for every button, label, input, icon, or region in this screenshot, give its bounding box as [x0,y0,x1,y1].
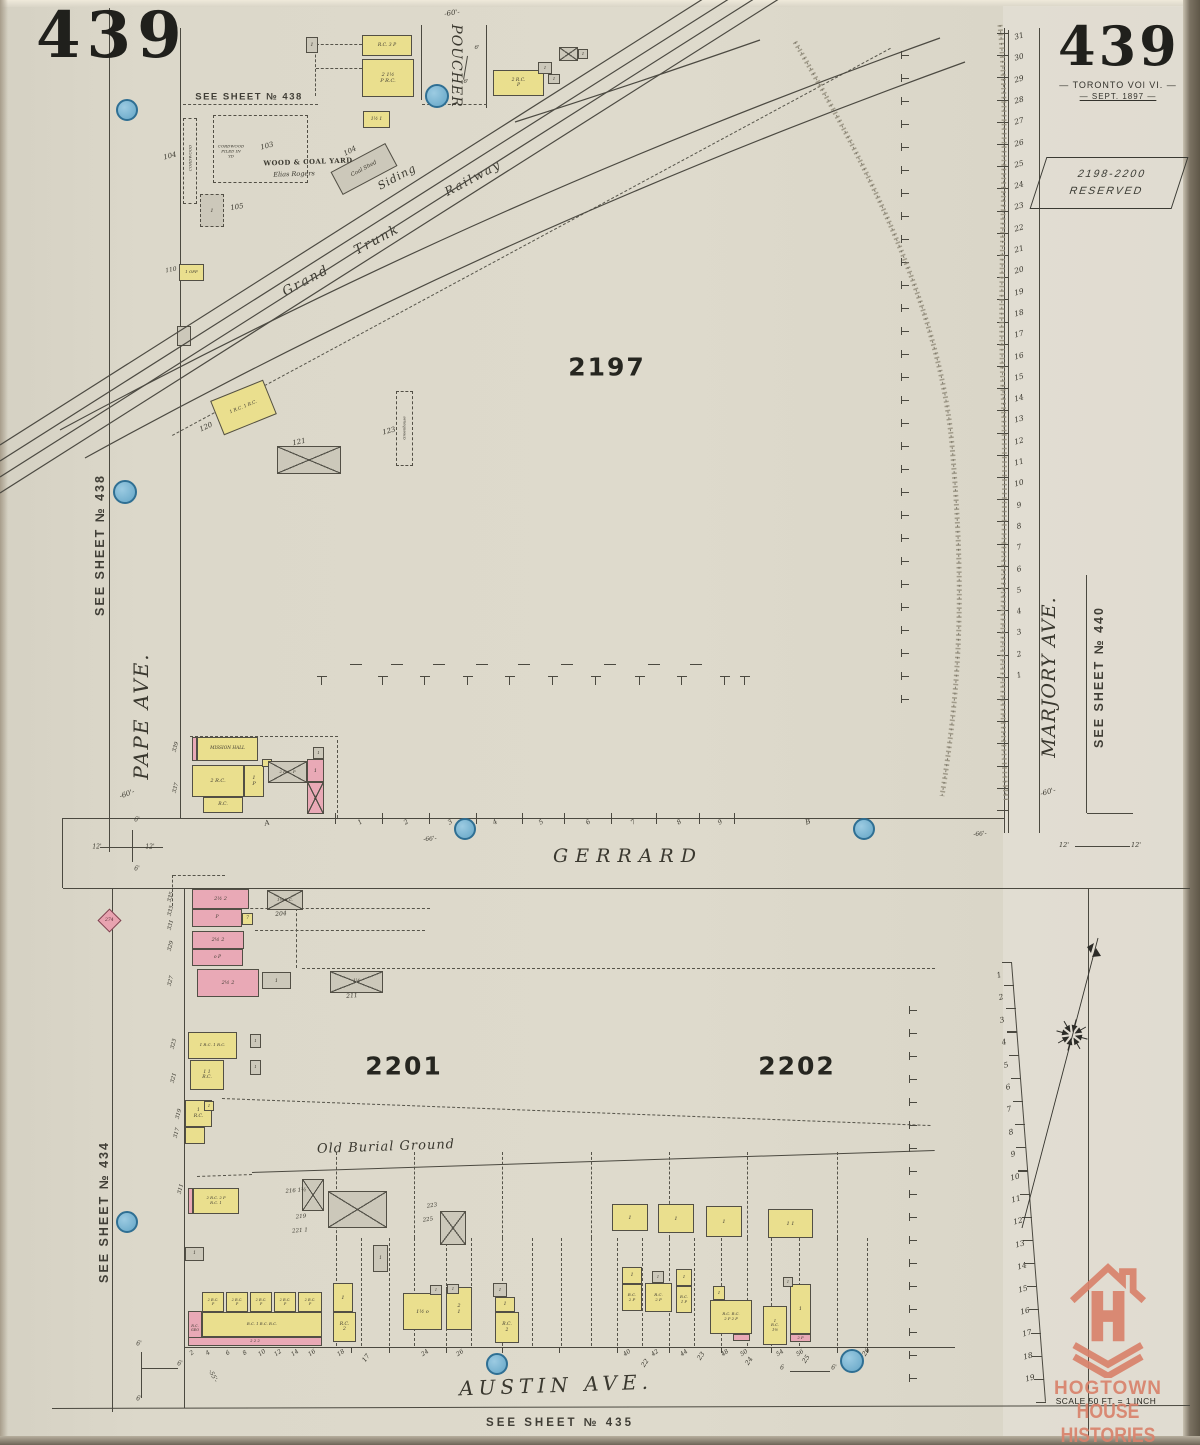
sheet-number-right: 439 [1058,14,1180,78]
hogtown-watermark: HOGTOWN HOUSE HISTORIES [1028,1260,1188,1445]
reserved-box: 2198-2200 RESERVED [1030,157,1189,209]
svg-path [1022,938,1098,1228]
svg-path [795,42,959,796]
diamond-label: 274 [105,918,114,923]
marker-pin[interactable] [425,84,449,108]
marker-pin[interactable] [113,480,137,504]
marker-pin[interactable] [853,818,875,840]
volume-title: — TORONTO VOl VI. — [1048,80,1188,90]
marker-pin[interactable] [116,1211,138,1233]
volume-date: — SEPT. 1897 — [1048,92,1188,101]
reserved-range: 2198-2200 [1075,166,1149,183]
reserved-label: RESERVED [1067,183,1146,200]
compass-mini-arrow [1092,948,1101,957]
compass-mini-arrow [1087,943,1094,953]
hogtown-logo-icon [1060,1260,1156,1378]
watermark-line2: HOUSE HISTORIES [1041,1400,1175,1445]
scale-note: SCALE 50 FT. = 1 INCH [1026,1396,1186,1406]
svg-path [85,62,965,458]
railway-and-terrain-layer [0,0,1200,1445]
volume-caption: — TORONTO VOl VI. — — SEPT. 1897 — [1048,80,1188,101]
marker-pin[interactable] [116,99,138,121]
svg-path [1000,25,1006,800]
sheet-number-left: 439 [36,0,188,73]
svg-path [0,0,793,493]
marker-pin[interactable] [486,1353,508,1375]
marker-pin[interactable] [454,818,476,840]
map-sheet: 439 439 — TORONTO VOl VI. — — SEPT. 1897… [0,0,1200,1445]
svg-path [795,42,959,796]
svg-path [515,40,760,122]
marker-pin[interactable] [840,1349,864,1373]
